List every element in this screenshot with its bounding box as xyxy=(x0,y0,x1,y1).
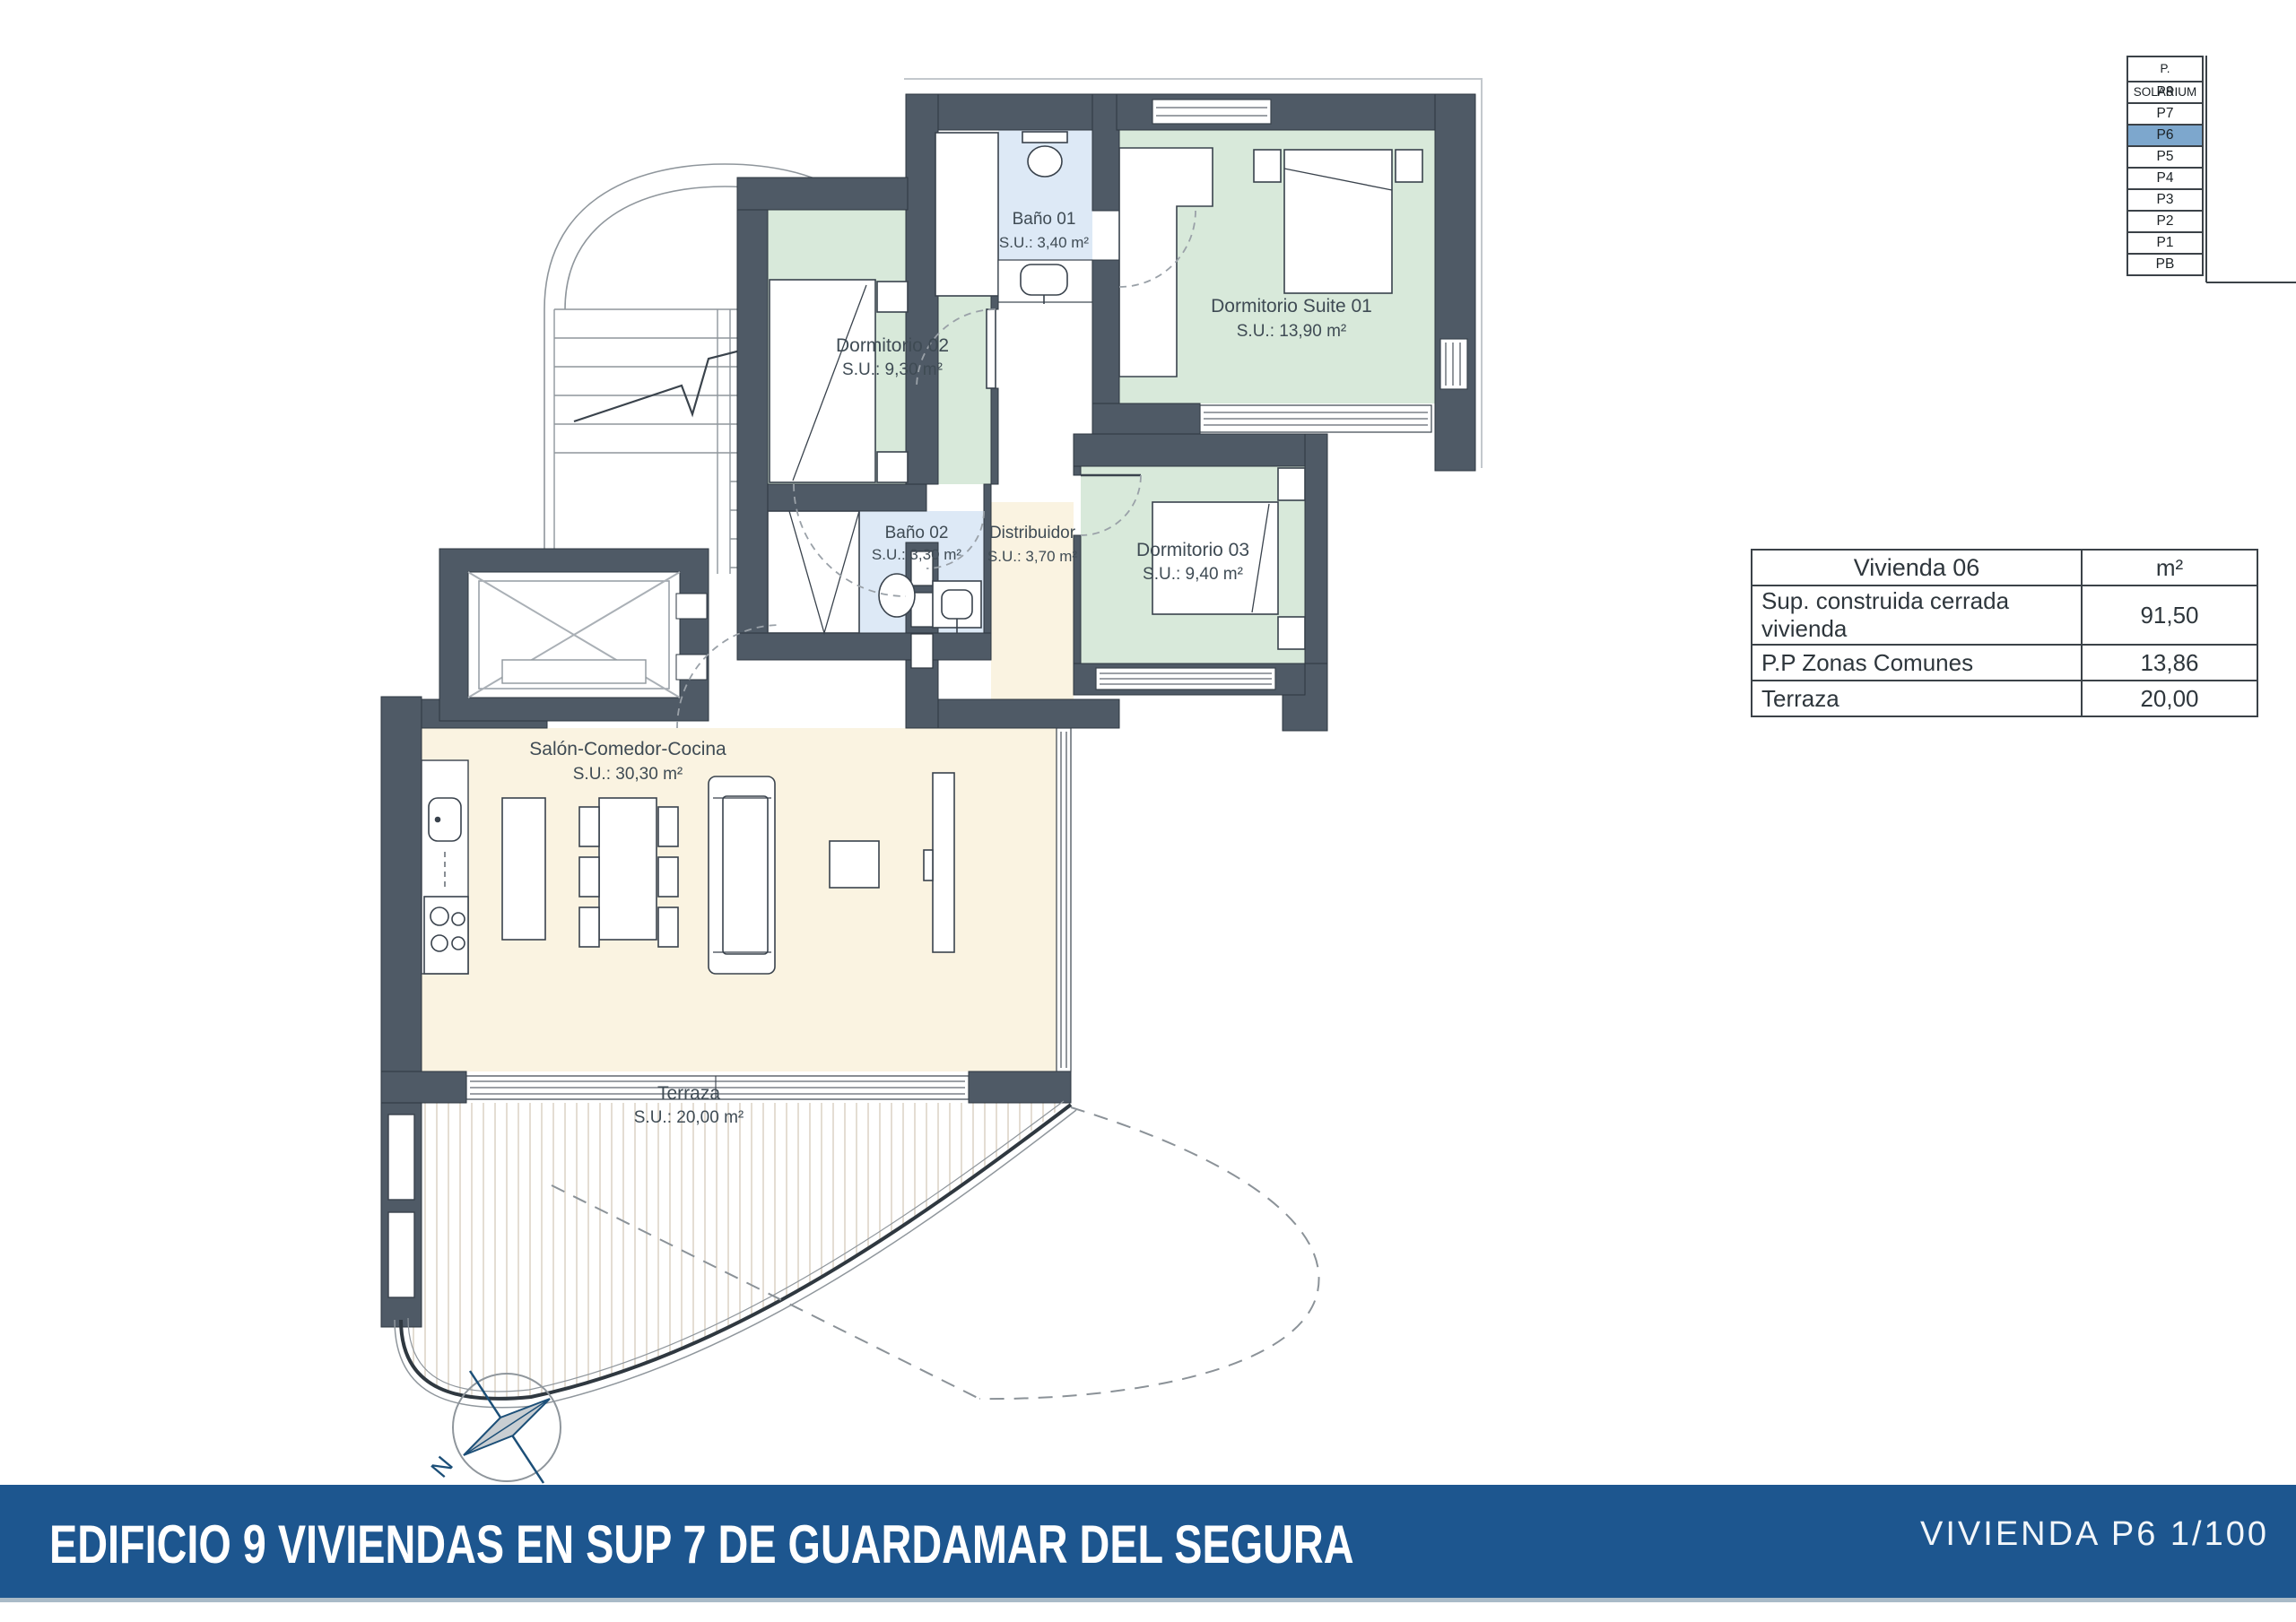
area-summary-table: Vivienda 06 m² Sup. construida cerrada v… xyxy=(1751,549,2258,717)
svg-text:S.U.: 9,40 m²: S.U.: 9,40 m² xyxy=(1143,565,1243,584)
label-terraza: Terraza xyxy=(657,1083,720,1104)
label-bano-02: Baño 02 xyxy=(885,524,949,542)
label-suite-01: Dormitorio Suite 01 xyxy=(1211,296,1372,317)
table-row-value: 91,50 xyxy=(2082,585,2257,645)
floor-plan: Baño 01 S.U.: 3,40 m² Dormitorio 02 S.U.… xyxy=(0,0,2296,1622)
svg-text:S.U.: 20,00 m²: S.U.: 20,00 m² xyxy=(634,1108,744,1127)
floor-row-p3[interactable]: P3 xyxy=(2126,190,2204,212)
label-salon: Salón-Comedor-Cocina xyxy=(529,739,726,759)
svg-text:S.U.: 3,40 m²: S.U.: 3,40 m² xyxy=(999,234,1089,251)
table-row-value: 20,00 xyxy=(2082,681,2257,716)
floor-row-pb[interactable]: PB xyxy=(2126,255,2204,276)
floor-row-p1[interactable]: P1 xyxy=(2126,233,2204,255)
section-reference-lines xyxy=(2206,56,2296,282)
floor-row-p2[interactable]: P2 xyxy=(2126,212,2204,233)
title-bar-strip xyxy=(0,1598,2296,1602)
label-dormitorio-02: Dormitorio 02 xyxy=(836,335,949,356)
label-distribuidor: Distribuidor xyxy=(989,524,1076,542)
floor-selector: P. SOLARIUM P8 P7 P6 P5 P4 P3 P2 P1 PB xyxy=(2126,56,2204,276)
floor-row-p6-selected[interactable]: P6 xyxy=(2126,126,2204,147)
svg-text:S.U.: 3,30 m²: S.U.: 3,30 m² xyxy=(872,546,961,563)
project-title: EDIFICIO 9 VIVIENDAS EN SUP 7 DE GUARDAM… xyxy=(49,1514,1354,1575)
svg-text:S.U.: 13,90 m²: S.U.: 13,90 m² xyxy=(1237,322,1347,341)
title-bar: EDIFICIO 9 VIVIENDAS EN SUP 7 DE GUARDAM… xyxy=(0,1485,2296,1598)
service-shafts xyxy=(911,551,933,668)
elevator xyxy=(468,572,707,698)
north-label: N xyxy=(425,1451,458,1482)
table-row-label: Terraza xyxy=(1752,681,2082,716)
room-terraza-fill xyxy=(403,1103,1067,1397)
label-bano-01: Baño 01 xyxy=(1013,210,1076,229)
floor-row-p7[interactable]: P7 xyxy=(2126,104,2204,126)
table-row-label: Sup. construida cerrada vivienda xyxy=(1752,585,2082,645)
floor-row-p5[interactable]: P5 xyxy=(2126,147,2204,169)
table-title: Vivienda 06 xyxy=(1752,550,2082,585)
table-row-value: 13,86 xyxy=(2082,645,2257,681)
table-row-label: P.P Zonas Comunes xyxy=(1752,645,2082,681)
svg-text:S.U.: 30,30 m²: S.U.: 30,30 m² xyxy=(573,765,683,784)
svg-text:S.U.: 9,30 m²: S.U.: 9,30 m² xyxy=(842,360,943,379)
plan-scale-label: VIVIENDA P6 1/100 xyxy=(1920,1515,2269,1554)
label-dormitorio-03: Dormitorio 03 xyxy=(1136,540,1249,560)
svg-text:S.U.: 3,70 m²: S.U.: 3,70 m² xyxy=(987,548,1077,565)
floor-selector-header: P. SOLARIUM xyxy=(2126,56,2204,82)
floor-row-p4[interactable]: P4 xyxy=(2126,169,2204,190)
table-unit-header: m² xyxy=(2082,550,2257,585)
